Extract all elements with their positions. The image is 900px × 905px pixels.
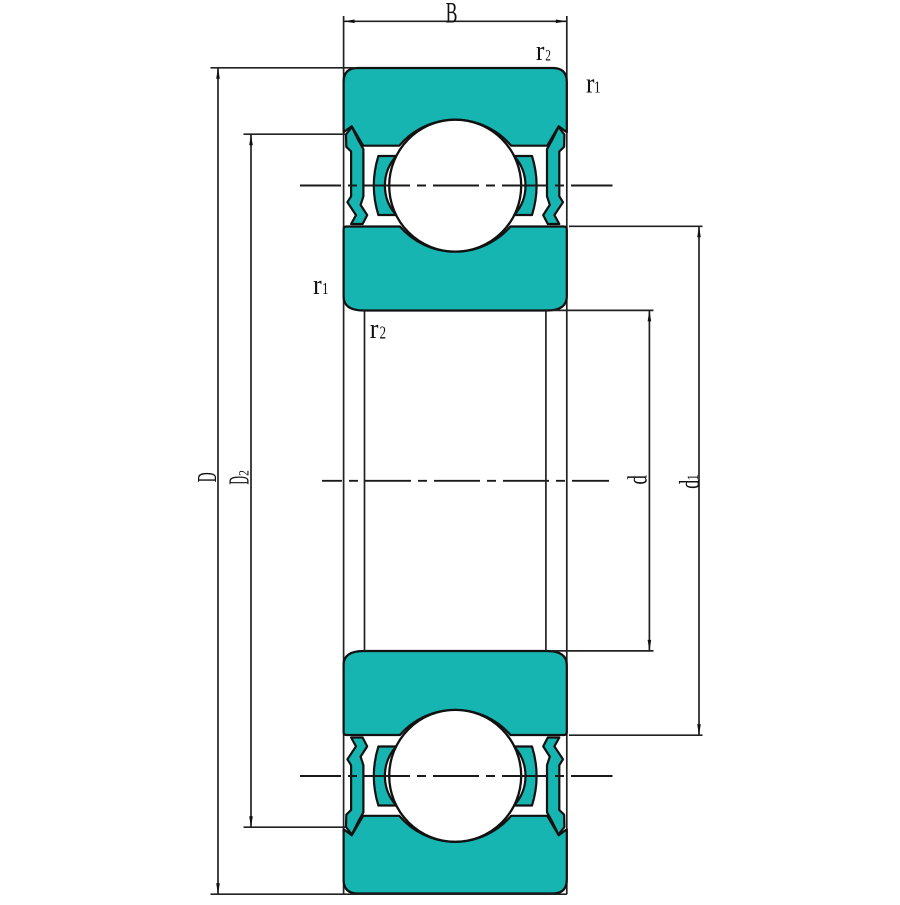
svg-text:1: 1 <box>322 281 329 299</box>
svg-text:D: D <box>192 472 222 482</box>
svg-text:2: 2 <box>235 470 252 476</box>
svg-text:2: 2 <box>545 47 551 64</box>
svg-text:r: r <box>370 312 379 345</box>
svg-text:r: r <box>313 268 322 301</box>
svg-text:1: 1 <box>594 79 601 97</box>
svg-text:D: D <box>224 476 255 485</box>
svg-text:2: 2 <box>380 324 387 343</box>
svg-text:d: d <box>623 475 653 485</box>
svg-text:1: 1 <box>685 474 703 480</box>
svg-text:r: r <box>536 35 545 67</box>
svg-text:B: B <box>446 0 458 30</box>
